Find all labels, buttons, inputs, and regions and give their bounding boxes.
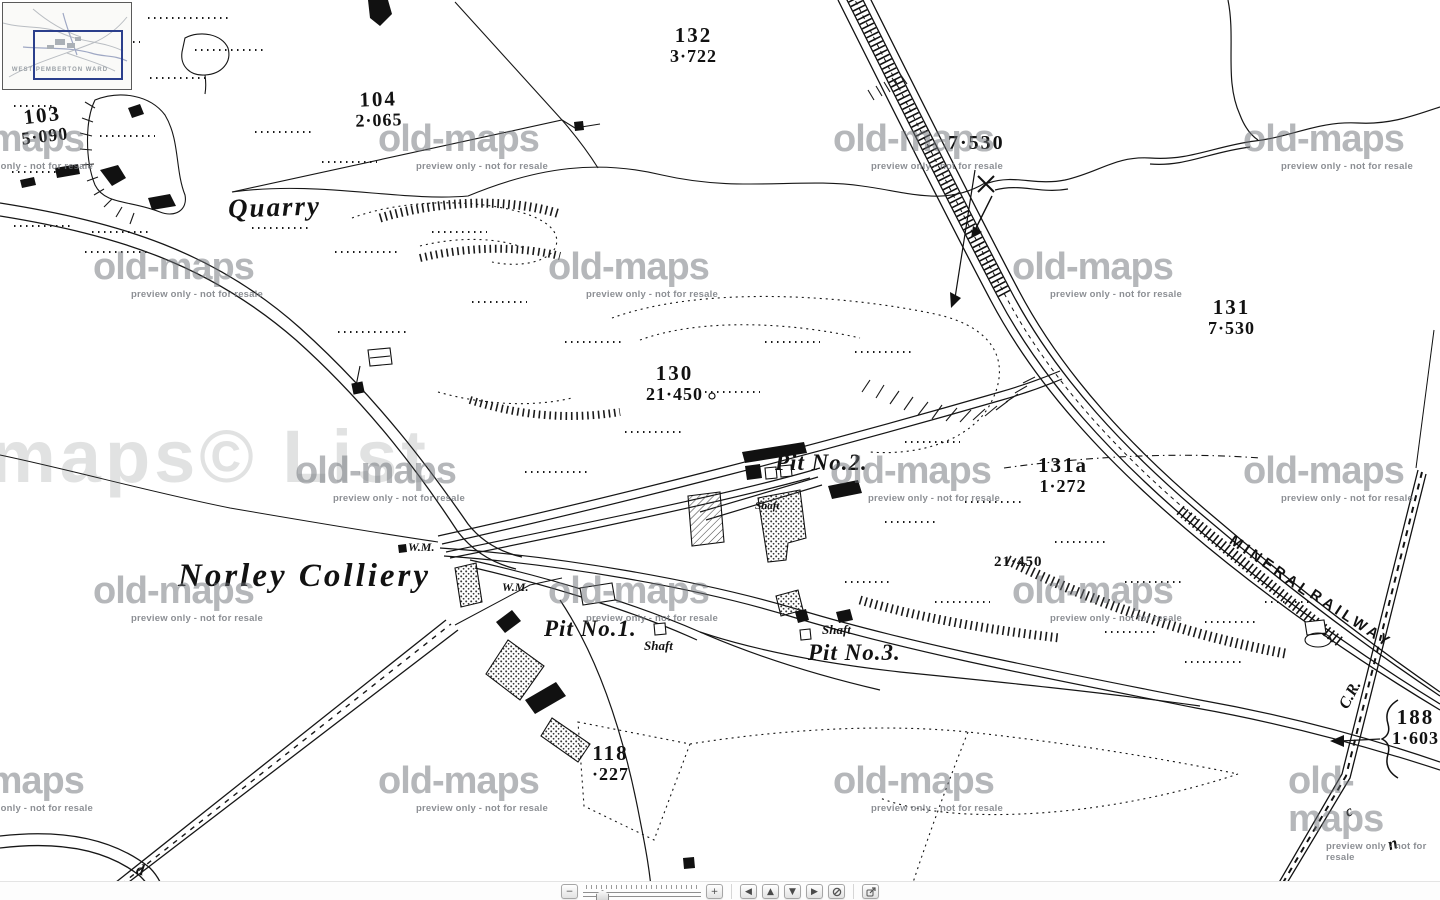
parcel-132-label: 1323·722 bbox=[670, 24, 717, 67]
roads bbox=[0, 203, 562, 882]
pan-up-button[interactable]: ▲ bbox=[762, 884, 779, 899]
overview-inset-map[interactable]: WEST PEMBERTON WARD bbox=[2, 2, 132, 90]
parcel-188-label: 1881·603 bbox=[1392, 706, 1439, 749]
map-canvas[interactable] bbox=[0, 0, 1440, 900]
zoom-slider[interactable] bbox=[583, 884, 701, 899]
parcel-130-label: 13021·450 bbox=[646, 362, 703, 405]
norley-colliery-label: Norley Colliery bbox=[178, 558, 431, 595]
parcel-131a-label: 131a1·272 bbox=[1038, 454, 1088, 497]
export-button[interactable] bbox=[862, 884, 879, 899]
pan-right-button[interactable]: ▶ bbox=[806, 884, 823, 899]
map-viewer: old-mapspreview only - not for resale ol… bbox=[0, 0, 1440, 900]
shaft-label-pit3: Shaft bbox=[822, 622, 851, 638]
buildings-solid bbox=[20, 0, 862, 869]
pit-no2-label: Pit No.2. bbox=[775, 450, 868, 476]
stream bbox=[988, 0, 1440, 190]
pit-no3-label: Pit No.3. bbox=[808, 640, 901, 666]
tip-area-value: 21·450 bbox=[994, 554, 1043, 571]
pit-no1-label: Pit No.1. bbox=[544, 616, 637, 642]
wm-label-1: W.M. bbox=[408, 540, 434, 555]
reset-view-icon bbox=[832, 887, 842, 897]
pan-down-button[interactable]: ▼ bbox=[784, 884, 801, 899]
toolbar-separator bbox=[731, 884, 732, 899]
railway-area-value: 7·530 bbox=[948, 132, 1005, 155]
buildings-outline bbox=[352, 348, 1331, 762]
wm-label-2: W.M. bbox=[502, 580, 528, 595]
quarry-label: Quarry bbox=[227, 190, 321, 224]
parcel-103-label: 1035·090 bbox=[18, 101, 70, 149]
pan-left-button[interactable]: ◀ bbox=[740, 884, 757, 899]
inset-caption: WEST PEMBERTON WARD bbox=[3, 67, 117, 73]
parcel-131-label: 1317·530 bbox=[1208, 296, 1255, 339]
zoom-slider-ticks bbox=[586, 885, 698, 889]
mineral-railway bbox=[838, 0, 1440, 882]
parcel-104-label: 1042·065 bbox=[354, 87, 402, 132]
export-icon bbox=[866, 887, 876, 897]
shaft-label-pit2: Shaft bbox=[755, 500, 779, 512]
zoom-out-button[interactable]: − bbox=[561, 884, 578, 899]
parcel-118-label: 118·227 bbox=[592, 742, 629, 785]
map-line-work bbox=[0, 0, 1440, 882]
map-toolbar: − + ◀ ▲ ▼ ▶ bbox=[0, 881, 1440, 900]
reset-view-button[interactable] bbox=[828, 884, 845, 899]
toolbar-separator bbox=[853, 884, 854, 899]
shaft-label-pit1: Shaft bbox=[644, 638, 673, 654]
zoom-in-button[interactable]: + bbox=[706, 884, 723, 899]
